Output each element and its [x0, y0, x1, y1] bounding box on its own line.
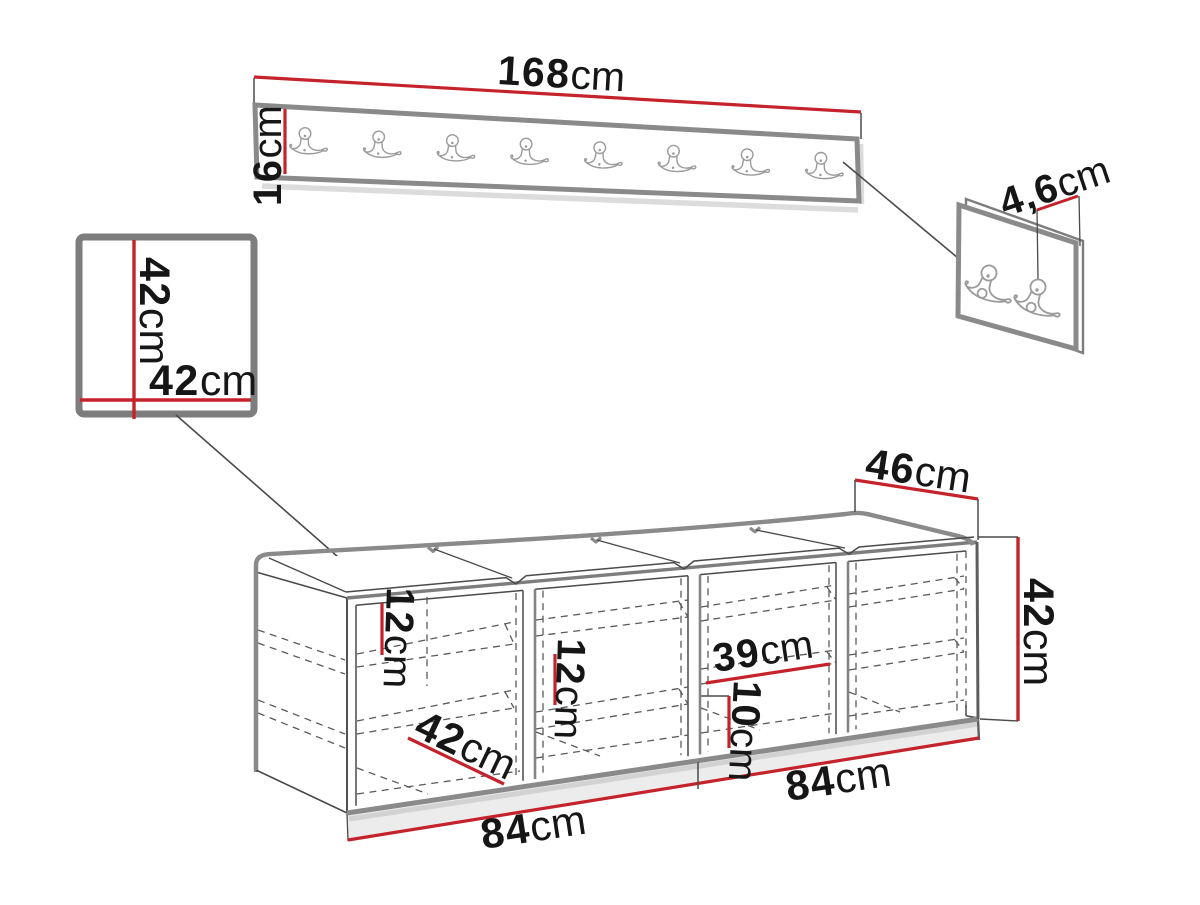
svg-text:16cm: 16cm — [246, 105, 290, 206]
svg-text:10cm: 10cm — [720, 680, 769, 783]
svg-text:42cm: 42cm — [1014, 578, 1062, 686]
svg-text:42cm: 42cm — [149, 357, 257, 405]
svg-text:42cm: 42cm — [130, 257, 178, 365]
svg-text:12cm: 12cm — [545, 638, 592, 740]
svg-text:12cm: 12cm — [374, 587, 421, 689]
svg-text:168cm: 168cm — [496, 47, 626, 100]
